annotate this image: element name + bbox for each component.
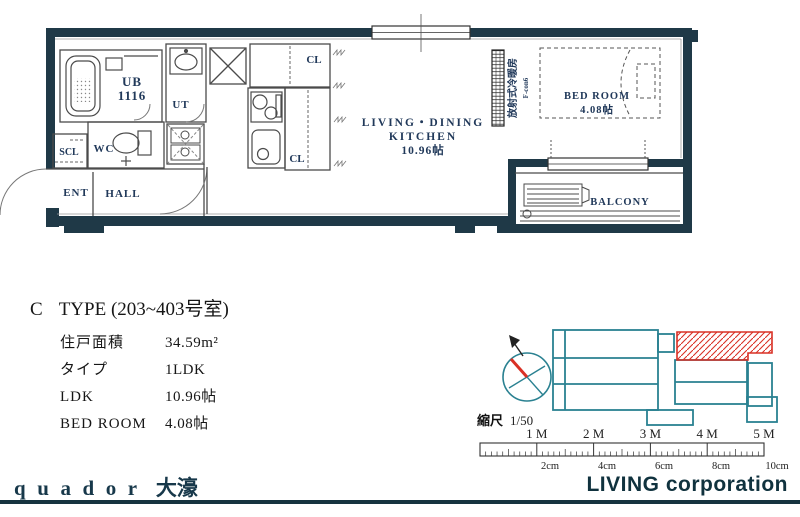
ruler-m-label: 1 M — [526, 426, 548, 441]
entrance-door-arc — [0, 169, 46, 215]
room-label-wc: WC — [94, 143, 115, 155]
room-label-ent: ENT — [63, 187, 89, 199]
divider-rule — [0, 500, 800, 504]
ruler-m-label: 2 M — [583, 426, 605, 441]
stove-icon — [251, 92, 282, 122]
ac-unit-icon — [523, 184, 589, 218]
heater-label-2: F-con6 — [522, 77, 530, 98]
washer-space-icon — [168, 125, 203, 163]
room-label-bedroom-size: 4.08帖 — [580, 103, 614, 116]
ruler-cm-label: 6cm — [655, 461, 673, 472]
room-label-ldk-1: LIVING・DINING — [362, 117, 485, 129]
room-label-cl-upper: CL — [306, 54, 321, 66]
info-row-ldk: LDK 10.96帖 — [60, 384, 229, 411]
unit-info: C TYPE (203~403号室) 住戸面積 34.59m² タイプ 1LDK… — [30, 294, 229, 438]
ruler-cm-label: 10cm — [765, 461, 788, 472]
north-arrow-icon — [509, 335, 523, 356]
interior-walls — [46, 44, 683, 216]
room-label-ldk-3: 10.96帖 — [401, 143, 444, 157]
info-row-type: タイプ 1LDK — [60, 357, 229, 384]
room-label-hall: HALL — [105, 188, 140, 200]
ruler-m-label: 3 M — [640, 426, 662, 441]
top-window — [372, 14, 470, 52]
heater-label-1: 放射式冷暖房 — [506, 58, 519, 119]
unit-type-title: C TYPE (203~403号室) — [30, 294, 229, 321]
balcony-window — [548, 140, 648, 170]
balcony-railing — [520, 211, 680, 221]
ruler-cm-label: 2cm — [541, 461, 559, 472]
footer-brand: quador 大濠 — [14, 472, 198, 502]
ruler-m-label: 5 M — [753, 426, 775, 441]
room-label-bedroom: BED ROOM — [564, 91, 630, 102]
ruler-cm-label: 8cm — [712, 461, 730, 472]
location-panel: 縮尺 1/50 1 M 2 M 3 M 4 M 5 M 2cm — [465, 320, 800, 480]
footer-company: LIVING corporation — [586, 473, 788, 497]
toilet-icon — [113, 131, 151, 166]
scale-label: 縮尺 — [477, 413, 503, 428]
ruler-m-label: 4 M — [697, 426, 719, 441]
room-label-scl: SCL — [59, 147, 79, 158]
room-label-ub: UB — [122, 74, 142, 89]
room-label-ub-size: 1116 — [118, 88, 147, 103]
washbasin-icon — [170, 48, 202, 74]
room-label-ut: UT — [172, 99, 189, 111]
site-map-highlight — [677, 332, 772, 360]
floor-plan: UB 1116 UT CL CL SCL WC ENT HALL LIVING・… — [0, 0, 800, 260]
room-label-ldk-2: KITCHEN — [389, 131, 457, 143]
info-row-bedroom: BED ROOM 4.08帖 — [60, 411, 229, 438]
brand-jp: 大濠 — [156, 477, 198, 500]
unit-type-letter: C — [30, 299, 43, 321]
room-label-cl-lower: CL — [289, 153, 304, 165]
bath-door-arc — [134, 104, 150, 120]
unit-type-range: TYPE (203~403号室) — [59, 294, 229, 321]
brand-latin: quador — [14, 476, 149, 500]
radiant-heater-icon — [492, 50, 504, 126]
ruler-cm-label: 4cm — [598, 461, 616, 472]
scale-ruler: 1 M 2 M 3 M 4 M 5 M 2cm 4cm 6cm 8cm 10cm — [480, 426, 789, 472]
info-row-area: 住戸面積 34.59m² — [60, 330, 229, 357]
hall-door-arc — [160, 167, 207, 214]
compass-icon — [503, 335, 551, 401]
sink-icon — [252, 130, 280, 164]
bathtub-icon — [66, 56, 158, 116]
room-label-balcony: BALCONY — [590, 197, 650, 208]
